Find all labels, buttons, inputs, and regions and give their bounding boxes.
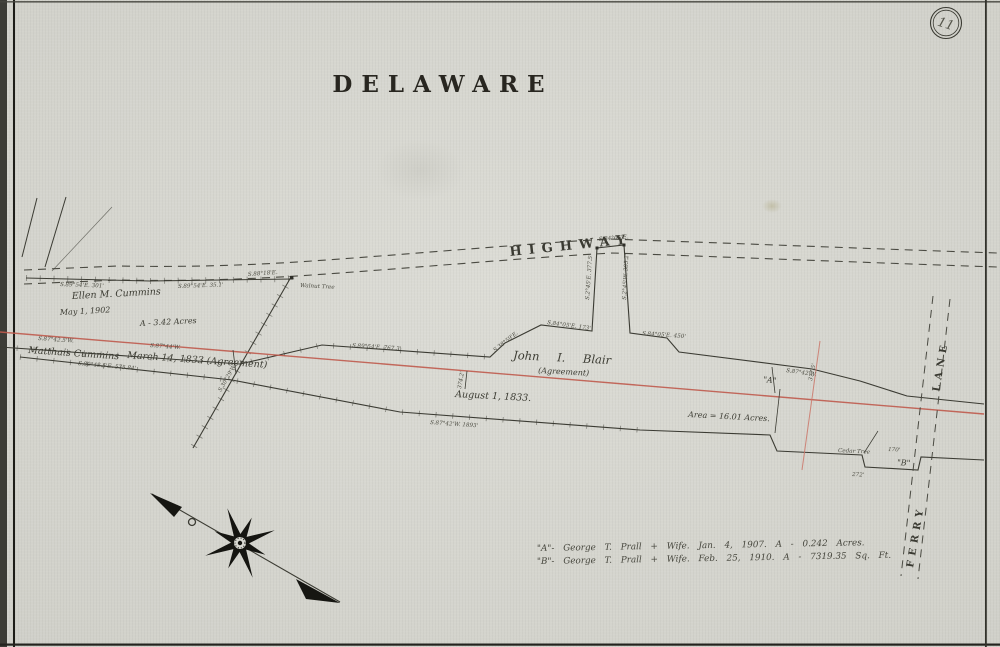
compass-hub-dot <box>238 541 242 545</box>
bearing-19: S.88°18'E. <box>248 270 278 278</box>
field-line-1 <box>22 198 37 257</box>
note-parcel-b: "B"- George T. Prall + Wife. Feb. 25, 19… <box>537 551 891 567</box>
map-title: DELAWARE <box>332 71 553 98</box>
top-border-line <box>0 1 1000 3</box>
compass-rose <box>150 493 340 603</box>
parcel-labels: Ellen M. Cummins May 1, 1902 A - 3.42 Ac… <box>27 286 911 467</box>
sheet-number-stamp: 11 <box>931 8 962 39</box>
blair-strip-area: Area = 16.01 Acres. <box>687 410 770 423</box>
blair-strip-date: August 1, 1833. <box>454 389 532 404</box>
bearing-12: S.84°05'E. 450' <box>642 331 686 340</box>
field-line-3 <box>52 207 112 271</box>
bearing-13: S.87°42'W. 1893' <box>430 420 478 429</box>
survey-map-sheet: 11 DELAWARE HIGHWAY Walnut Tree <box>0 0 1000 647</box>
map-canvas: 11 DELAWARE HIGHWAY Walnut Tree <box>0 0 1000 647</box>
bearing-10: S.2°45'W. 385.2' <box>622 254 630 301</box>
bearing-8: S.84°05'E. 173' <box>547 320 591 332</box>
bearing-9: S.2°45'E. 377.5' <box>585 254 594 300</box>
john-blair-name: John I. Blair <box>511 348 613 367</box>
bearing-17: 272' <box>851 472 865 479</box>
compass-south-arrowhead <box>296 579 340 603</box>
highway-road: HIGHWAY <box>24 232 997 284</box>
bearing-5: S.80°48.5'E. 575.84' <box>78 361 136 372</box>
right-border-line <box>985 0 987 647</box>
compass-needle-ring <box>189 519 196 526</box>
bottom-border-line <box>0 644 1000 646</box>
john-blair-agreement: (Agreement) <box>538 366 590 378</box>
bearing-4: S.87°44'W. <box>150 343 181 351</box>
left-border-line <box>13 0 15 647</box>
strip-corner-monument-right <box>623 244 626 247</box>
walnut-tree-monument <box>290 276 293 279</box>
bearing-2: S.89°54'E. 35.1' <box>178 282 224 290</box>
compass-north-arrowhead <box>150 493 182 517</box>
field-line-2 <box>45 197 66 267</box>
ellen-cummins-date: May 1, 1902 <box>59 305 111 317</box>
ferry-lane-road: LANE FERRY <box>901 296 951 579</box>
parcel-b-label: "B" <box>897 458 911 468</box>
bearing-18: 374.2' <box>457 371 466 389</box>
ellen-cummins-area: A - 3.42 Acres <box>139 316 197 328</box>
bearing-1: S.89°54'E. 301' <box>60 282 104 290</box>
sheet-number: 11 <box>935 15 955 34</box>
bearing-6: S.89°54'E. 767.3' <box>352 343 401 352</box>
converging-boundary-lines <box>22 197 112 271</box>
bearing-3: S.87°42.5'W. <box>38 336 75 345</box>
deed-notes: "A"- George T. Prall + Wife. Jan. 4, 190… <box>537 538 891 567</box>
strip-corner-monument-left <box>596 247 599 250</box>
lane-label: LANE <box>931 340 951 393</box>
walnut-tree-label: Walnut Tree <box>300 283 336 291</box>
ferry-label: FERRY <box>905 504 927 568</box>
bearing-16: 170' <box>888 447 901 454</box>
parcel-a-label: "A" <box>763 375 777 385</box>
red-cross-line <box>802 341 820 470</box>
dimension-tick-3 <box>775 389 780 433</box>
